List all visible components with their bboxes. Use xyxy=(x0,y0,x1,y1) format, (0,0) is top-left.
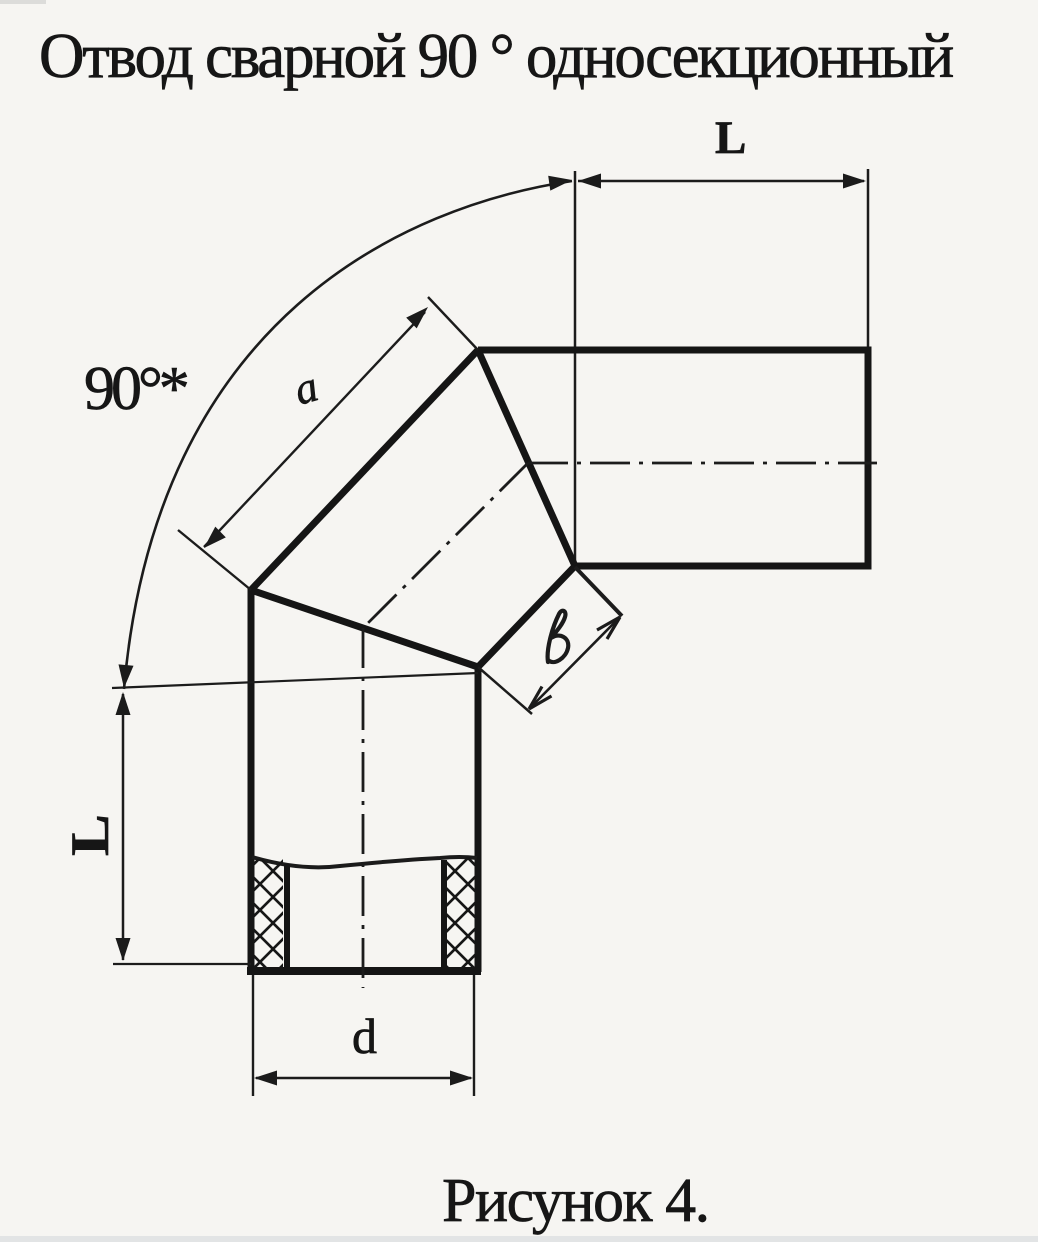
svg-text:L: L xyxy=(715,112,746,164)
svg-text:L: L xyxy=(60,814,120,856)
svg-text:d: d xyxy=(352,1008,377,1064)
svg-text:90°*: 90°* xyxy=(84,355,188,423)
svg-text:Отвод сварной 90 ° односекцион: Отвод сварной 90 ° односекционный xyxy=(39,21,953,91)
svg-text:Рисунок 4.: Рисунок 4. xyxy=(442,1167,709,1235)
